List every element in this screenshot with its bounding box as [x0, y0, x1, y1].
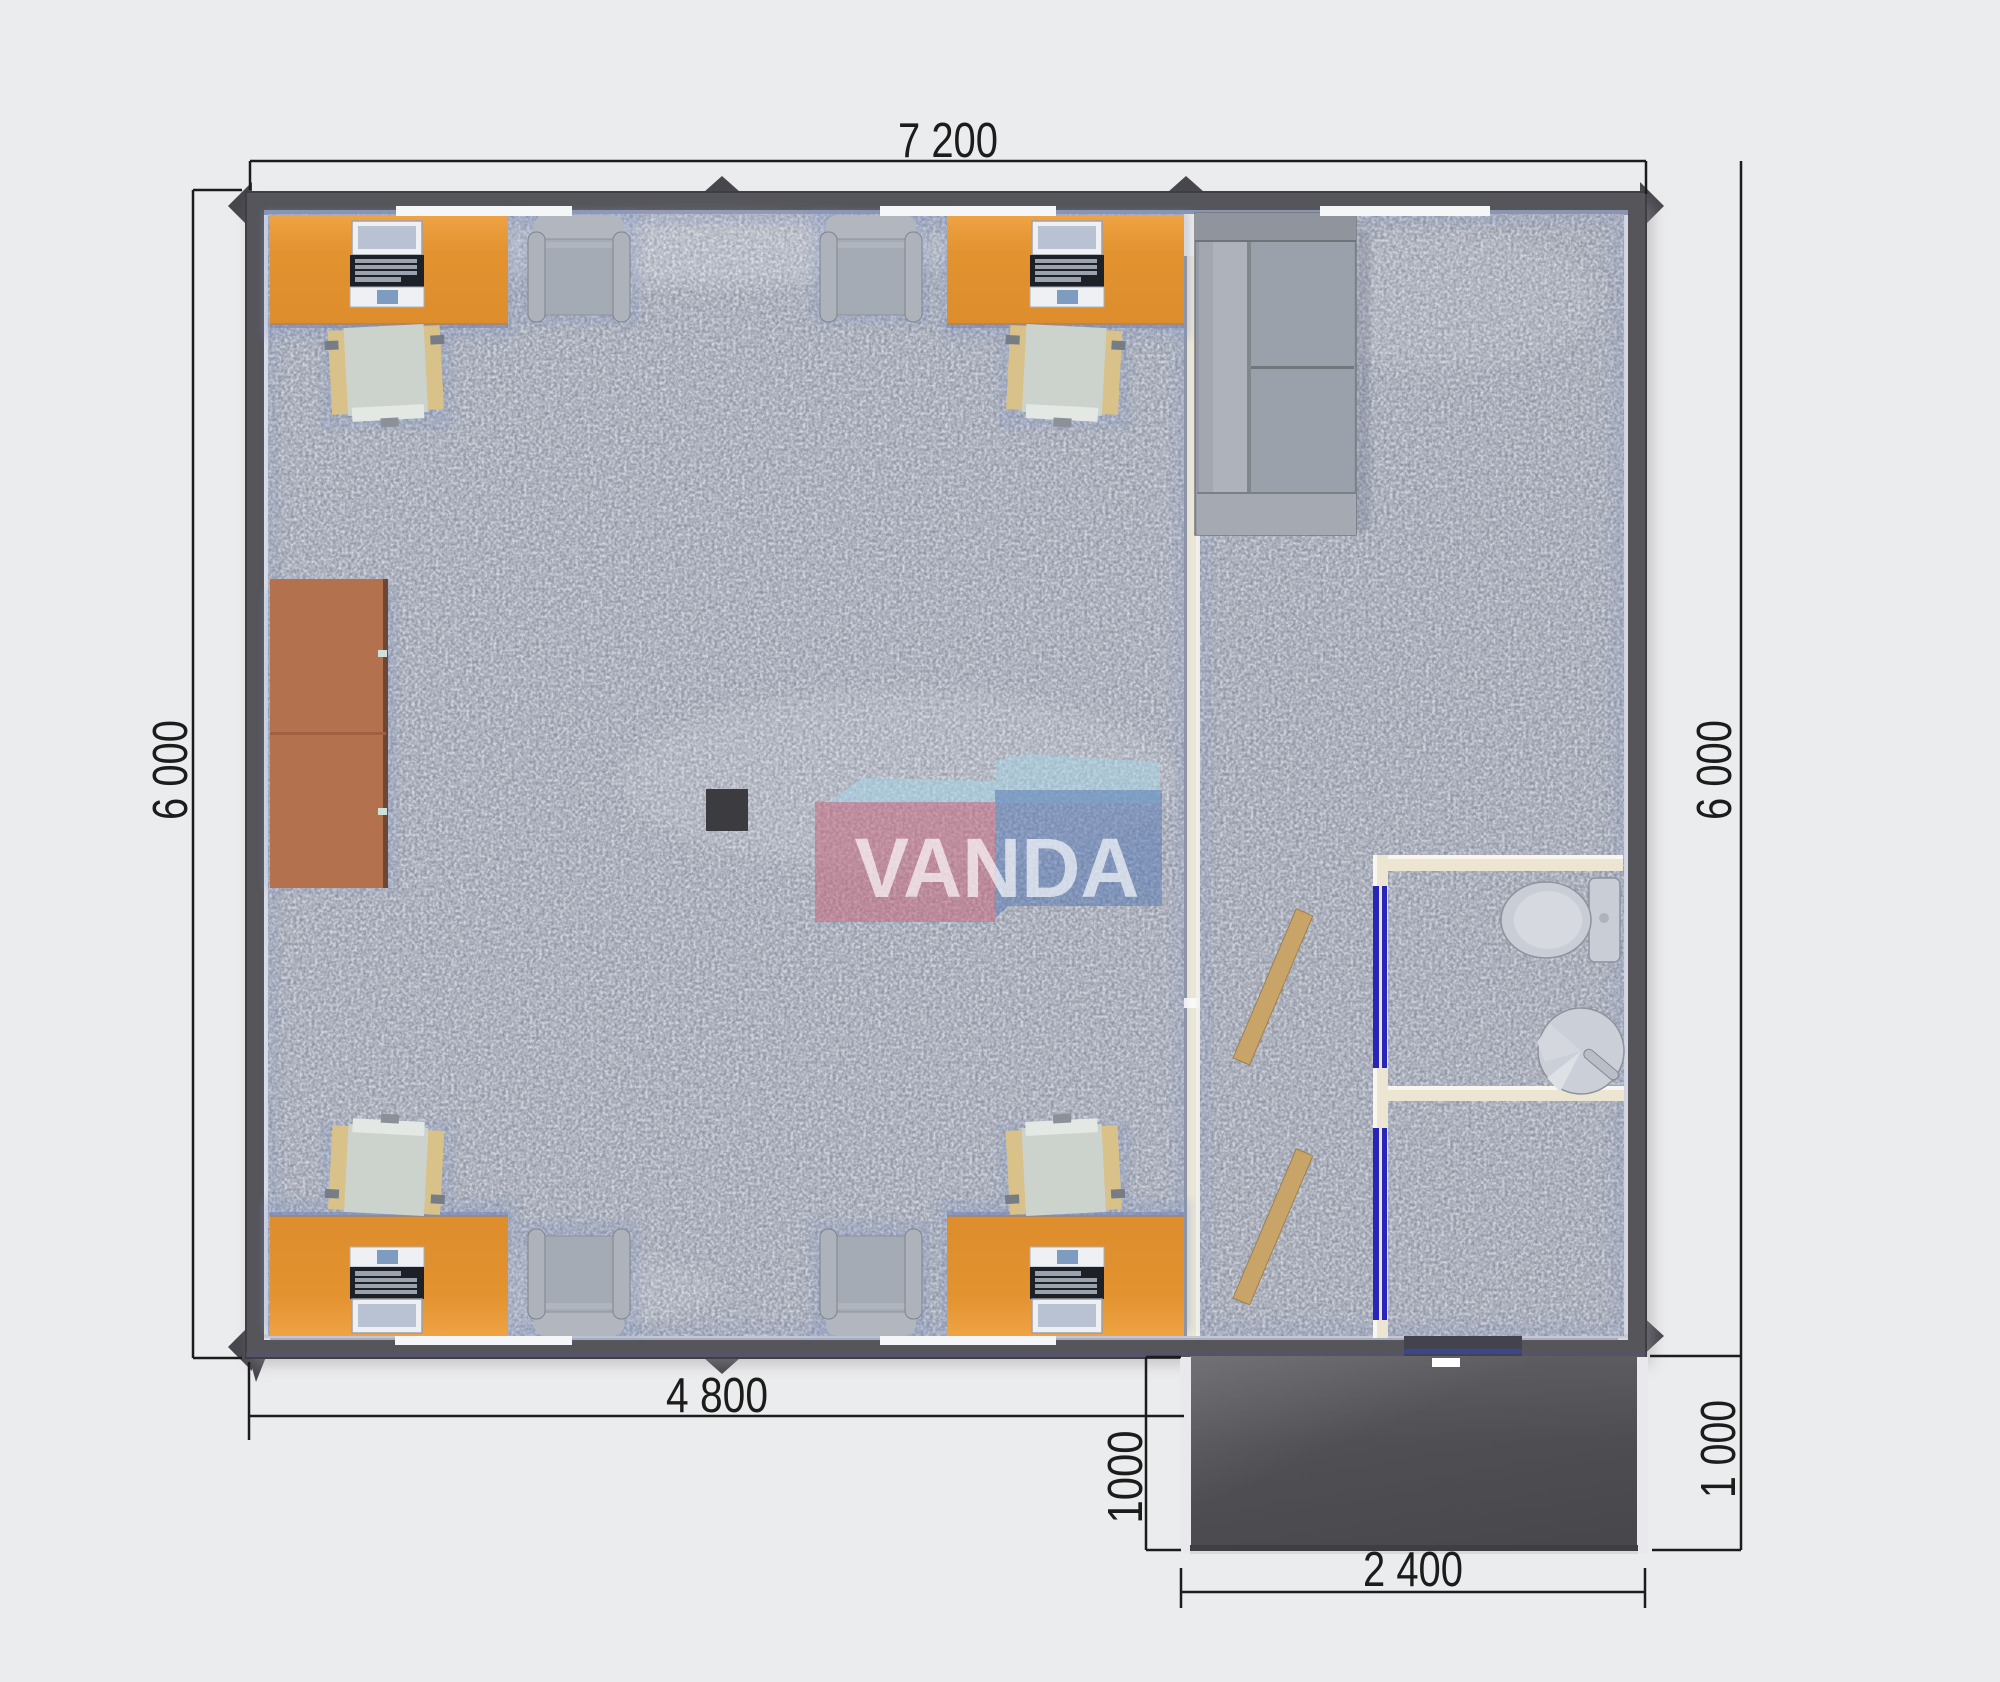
svg-text:1000: 1000 — [1099, 1431, 1153, 1524]
svg-text:VANDA: VANDA — [855, 821, 1140, 915]
svg-text:2 400: 2 400 — [1363, 1543, 1463, 1597]
svg-text:1 000: 1 000 — [1692, 1400, 1746, 1498]
svg-text:6 000: 6 000 — [1688, 720, 1742, 820]
svg-text:4 800: 4 800 — [666, 1369, 768, 1423]
svg-text:6 000: 6 000 — [144, 720, 198, 820]
svg-text:7 200: 7 200 — [898, 114, 998, 168]
